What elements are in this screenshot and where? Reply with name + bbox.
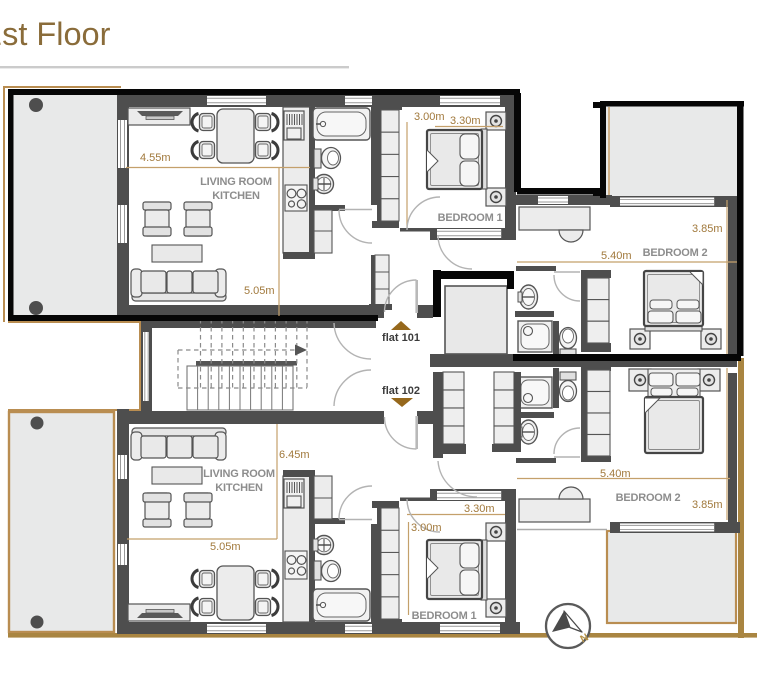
svg-text:3.85m: 3.85m [692, 499, 723, 511]
svg-text:3.30m: 3.30m [450, 115, 481, 127]
svg-text:LIVING ROOM: LIVING ROOM [203, 468, 275, 480]
svg-text:5.40m: 5.40m [600, 468, 631, 480]
svg-text:5.05m: 5.05m [244, 285, 275, 297]
svg-text:3.00m: 3.00m [414, 111, 445, 123]
svg-text:flat 101: flat 101 [382, 332, 420, 344]
svg-text:LIVING ROOM: LIVING ROOM [200, 176, 272, 188]
svg-text:flat 102: flat 102 [382, 385, 420, 397]
svg-text:4.55m: 4.55m [140, 152, 171, 164]
svg-text:KITCHEN: KITCHEN [212, 190, 260, 202]
svg-text:BEDROOM 2: BEDROOM 2 [616, 492, 681, 504]
svg-text:1st Floor: 1st Floor [0, 16, 111, 52]
svg-text:3.30m: 3.30m [464, 503, 495, 515]
svg-text:KITCHEN: KITCHEN [215, 482, 263, 494]
svg-text:5.40m: 5.40m [601, 250, 632, 262]
svg-text:BEDROOM 1: BEDROOM 1 [438, 212, 503, 224]
svg-text:BEDROOM 1: BEDROOM 1 [412, 610, 477, 622]
svg-text:BEDROOM 2: BEDROOM 2 [643, 247, 708, 259]
svg-text:5.05m: 5.05m [210, 541, 241, 553]
svg-text:3.00m: 3.00m [411, 522, 442, 534]
svg-text:6.45m: 6.45m [279, 449, 310, 461]
svg-text:3.85m: 3.85m [692, 223, 723, 235]
